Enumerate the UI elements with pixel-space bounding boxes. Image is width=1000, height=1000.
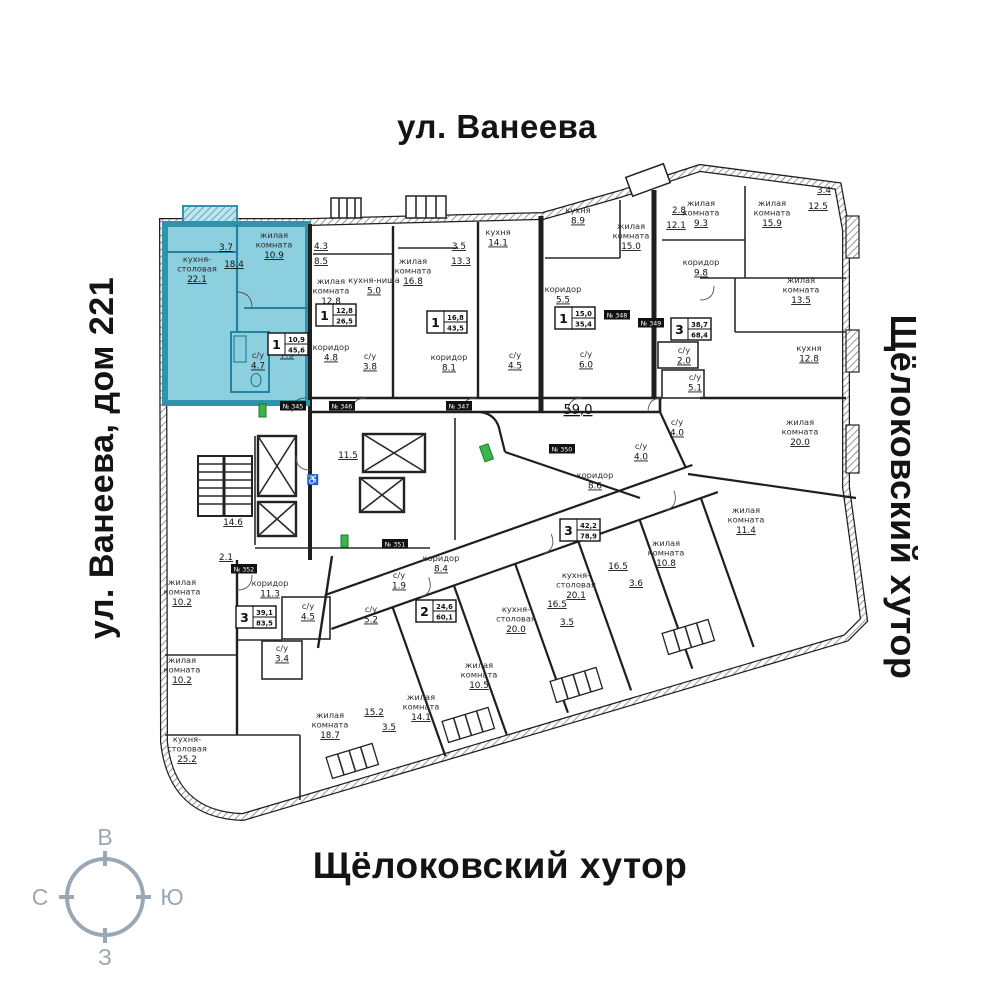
svg-text:43,5: 43,5: [447, 325, 464, 333]
room-label: кухня12.8: [796, 343, 821, 365]
room-label: с/у4.7: [251, 350, 265, 372]
svg-text:78,9: 78,9: [580, 533, 597, 541]
apartment-badge: 338,768,4: [671, 318, 711, 340]
room-label: 12.1: [666, 221, 686, 231]
room-label: 13.3: [451, 257, 471, 267]
apartment-badge: 112,826,5: [316, 304, 356, 326]
balcony: [846, 330, 859, 372]
svg-text:68,4: 68,4: [691, 332, 708, 340]
balcony: [846, 425, 859, 473]
svg-text:38,7: 38,7: [691, 321, 708, 329]
svg-text:№ 352: № 352: [233, 566, 255, 573]
room-label: с/у4.0: [670, 417, 684, 439]
svg-text:№ 345: № 345: [282, 403, 304, 410]
compass-icon: В Ю З С: [32, 824, 184, 970]
unit-number-plate: № 351: [382, 539, 408, 549]
svg-text:1: 1: [320, 308, 329, 323]
room-label: с/у5.1: [688, 372, 702, 394]
room-label: с/у2.0: [677, 345, 691, 367]
room-label: 3.4: [817, 186, 831, 196]
room-label: 3.5: [560, 618, 574, 628]
room-label: 3.5: [452, 242, 466, 252]
apartment-badge: 110,945,6: [268, 333, 308, 355]
balcony: [846, 216, 859, 258]
room-label: 3.6: [629, 579, 643, 589]
room-label: 14.6: [223, 518, 243, 528]
svg-text:83,5: 83,5: [256, 620, 273, 628]
svg-text:3: 3: [564, 523, 573, 538]
svg-text:45,6: 45,6: [288, 347, 305, 355]
svg-text:3: 3: [675, 322, 684, 337]
exit-marker: [341, 535, 348, 547]
room-label: 18.4: [224, 260, 244, 270]
room-label: 3.5: [382, 723, 396, 733]
street-label-left: ул. Ванеева, дом 221: [83, 277, 121, 639]
unit-number-plate: № 352: [231, 564, 257, 574]
svg-text:3: 3: [240, 610, 249, 625]
svg-text:15,0: 15,0: [575, 310, 592, 318]
unit-number-plate: № 347: [446, 401, 472, 411]
room-label: с/у4.5: [301, 601, 315, 623]
svg-text:12,8: 12,8: [336, 307, 353, 315]
svg-text:42,2: 42,2: [580, 522, 597, 530]
street-label-top: ул. Ванеева: [397, 108, 597, 145]
vent-shaft-icon: [331, 198, 361, 218]
floorplan-page: { "streets": { "top": "ул. Ванеева", "le…: [0, 0, 1000, 1000]
compass-west: З: [98, 944, 112, 970]
room-label: 8.5: [314, 257, 328, 267]
svg-text:16,8: 16,8: [447, 314, 464, 322]
room-label: 4.3: [314, 242, 328, 252]
room-label: 16.5: [608, 562, 628, 572]
room-label: с/у3.8: [363, 351, 377, 373]
apartment-badge: 224,660,1: [416, 600, 456, 622]
room-label: 11.5: [338, 451, 358, 461]
elevator-shaft-icon: [258, 502, 296, 536]
unit-number-plate: № 346: [329, 401, 355, 411]
room-label: 15.2: [364, 708, 384, 718]
room-label: 59,0: [564, 403, 593, 418]
exit-marker: [259, 404, 266, 417]
room-label: с/у6.0: [579, 349, 593, 371]
wheelchair-icon: ♿: [307, 473, 319, 486]
room-label: с/у1.9: [392, 570, 406, 592]
svg-text:2: 2: [420, 604, 429, 619]
svg-text:1: 1: [272, 337, 281, 352]
compass-south: Ю: [160, 884, 183, 910]
room-label: кухня14.1: [485, 227, 510, 249]
room-label: с/у4.0: [634, 441, 648, 463]
stairs-icon: [198, 456, 252, 516]
unit-number-plate: № 348: [604, 310, 630, 320]
svg-text:60,1: 60,1: [436, 614, 453, 622]
floor-plan-svg: ♿ кухня-столовая22.1жилаякомната10.93.71…: [0, 0, 1000, 1000]
room-label: с/у4.5: [508, 350, 522, 372]
unit-number-plate: № 350: [549, 444, 575, 454]
room-label: 3.7: [219, 243, 233, 253]
svg-text:№ 348: № 348: [606, 312, 628, 319]
room-label: с/у5.2: [364, 604, 378, 626]
room-label: 12.5: [808, 202, 828, 212]
svg-text:10,9: 10,9: [288, 336, 305, 344]
svg-text:26,5: 26,5: [336, 318, 353, 326]
room-label: с/у3.4: [275, 643, 289, 665]
elevator-shaft-icon: [360, 478, 404, 512]
street-label-right: Щёлоковский хутор: [883, 315, 924, 680]
apartment-badge: 342,278,9: [560, 519, 600, 541]
room-label: 16.5: [547, 600, 567, 610]
svg-text:№ 346: № 346: [331, 403, 353, 410]
svg-text:24,6: 24,6: [436, 603, 453, 611]
svg-text:№ 351: № 351: [384, 541, 406, 548]
room-label: 2.1: [219, 553, 233, 563]
street-label-bottom: Щёлоковский хутор: [313, 845, 688, 886]
vent-shaft-icon: [406, 196, 446, 218]
svg-text:1: 1: [431, 315, 440, 330]
svg-text:1: 1: [559, 311, 568, 326]
compass-north: С: [32, 884, 49, 910]
elevator-shaft-icon: [363, 434, 425, 472]
elevator-shaft-icon: [258, 436, 296, 496]
svg-text:№ 347: № 347: [448, 403, 470, 410]
svg-text:№ 349: № 349: [640, 320, 662, 327]
apartment-badge: 115,035,4: [555, 307, 595, 329]
compass-east: В: [97, 824, 112, 850]
svg-text:39,1: 39,1: [256, 609, 273, 617]
apartment-badge: 116,843,5: [427, 311, 467, 333]
svg-text:№ 350: № 350: [551, 446, 573, 453]
svg-text:35,4: 35,4: [575, 321, 592, 329]
apartment-badge: 339,183,5: [236, 606, 276, 628]
unit-number-plate: № 345: [280, 401, 306, 411]
unit-number-plate: № 349: [638, 318, 664, 328]
